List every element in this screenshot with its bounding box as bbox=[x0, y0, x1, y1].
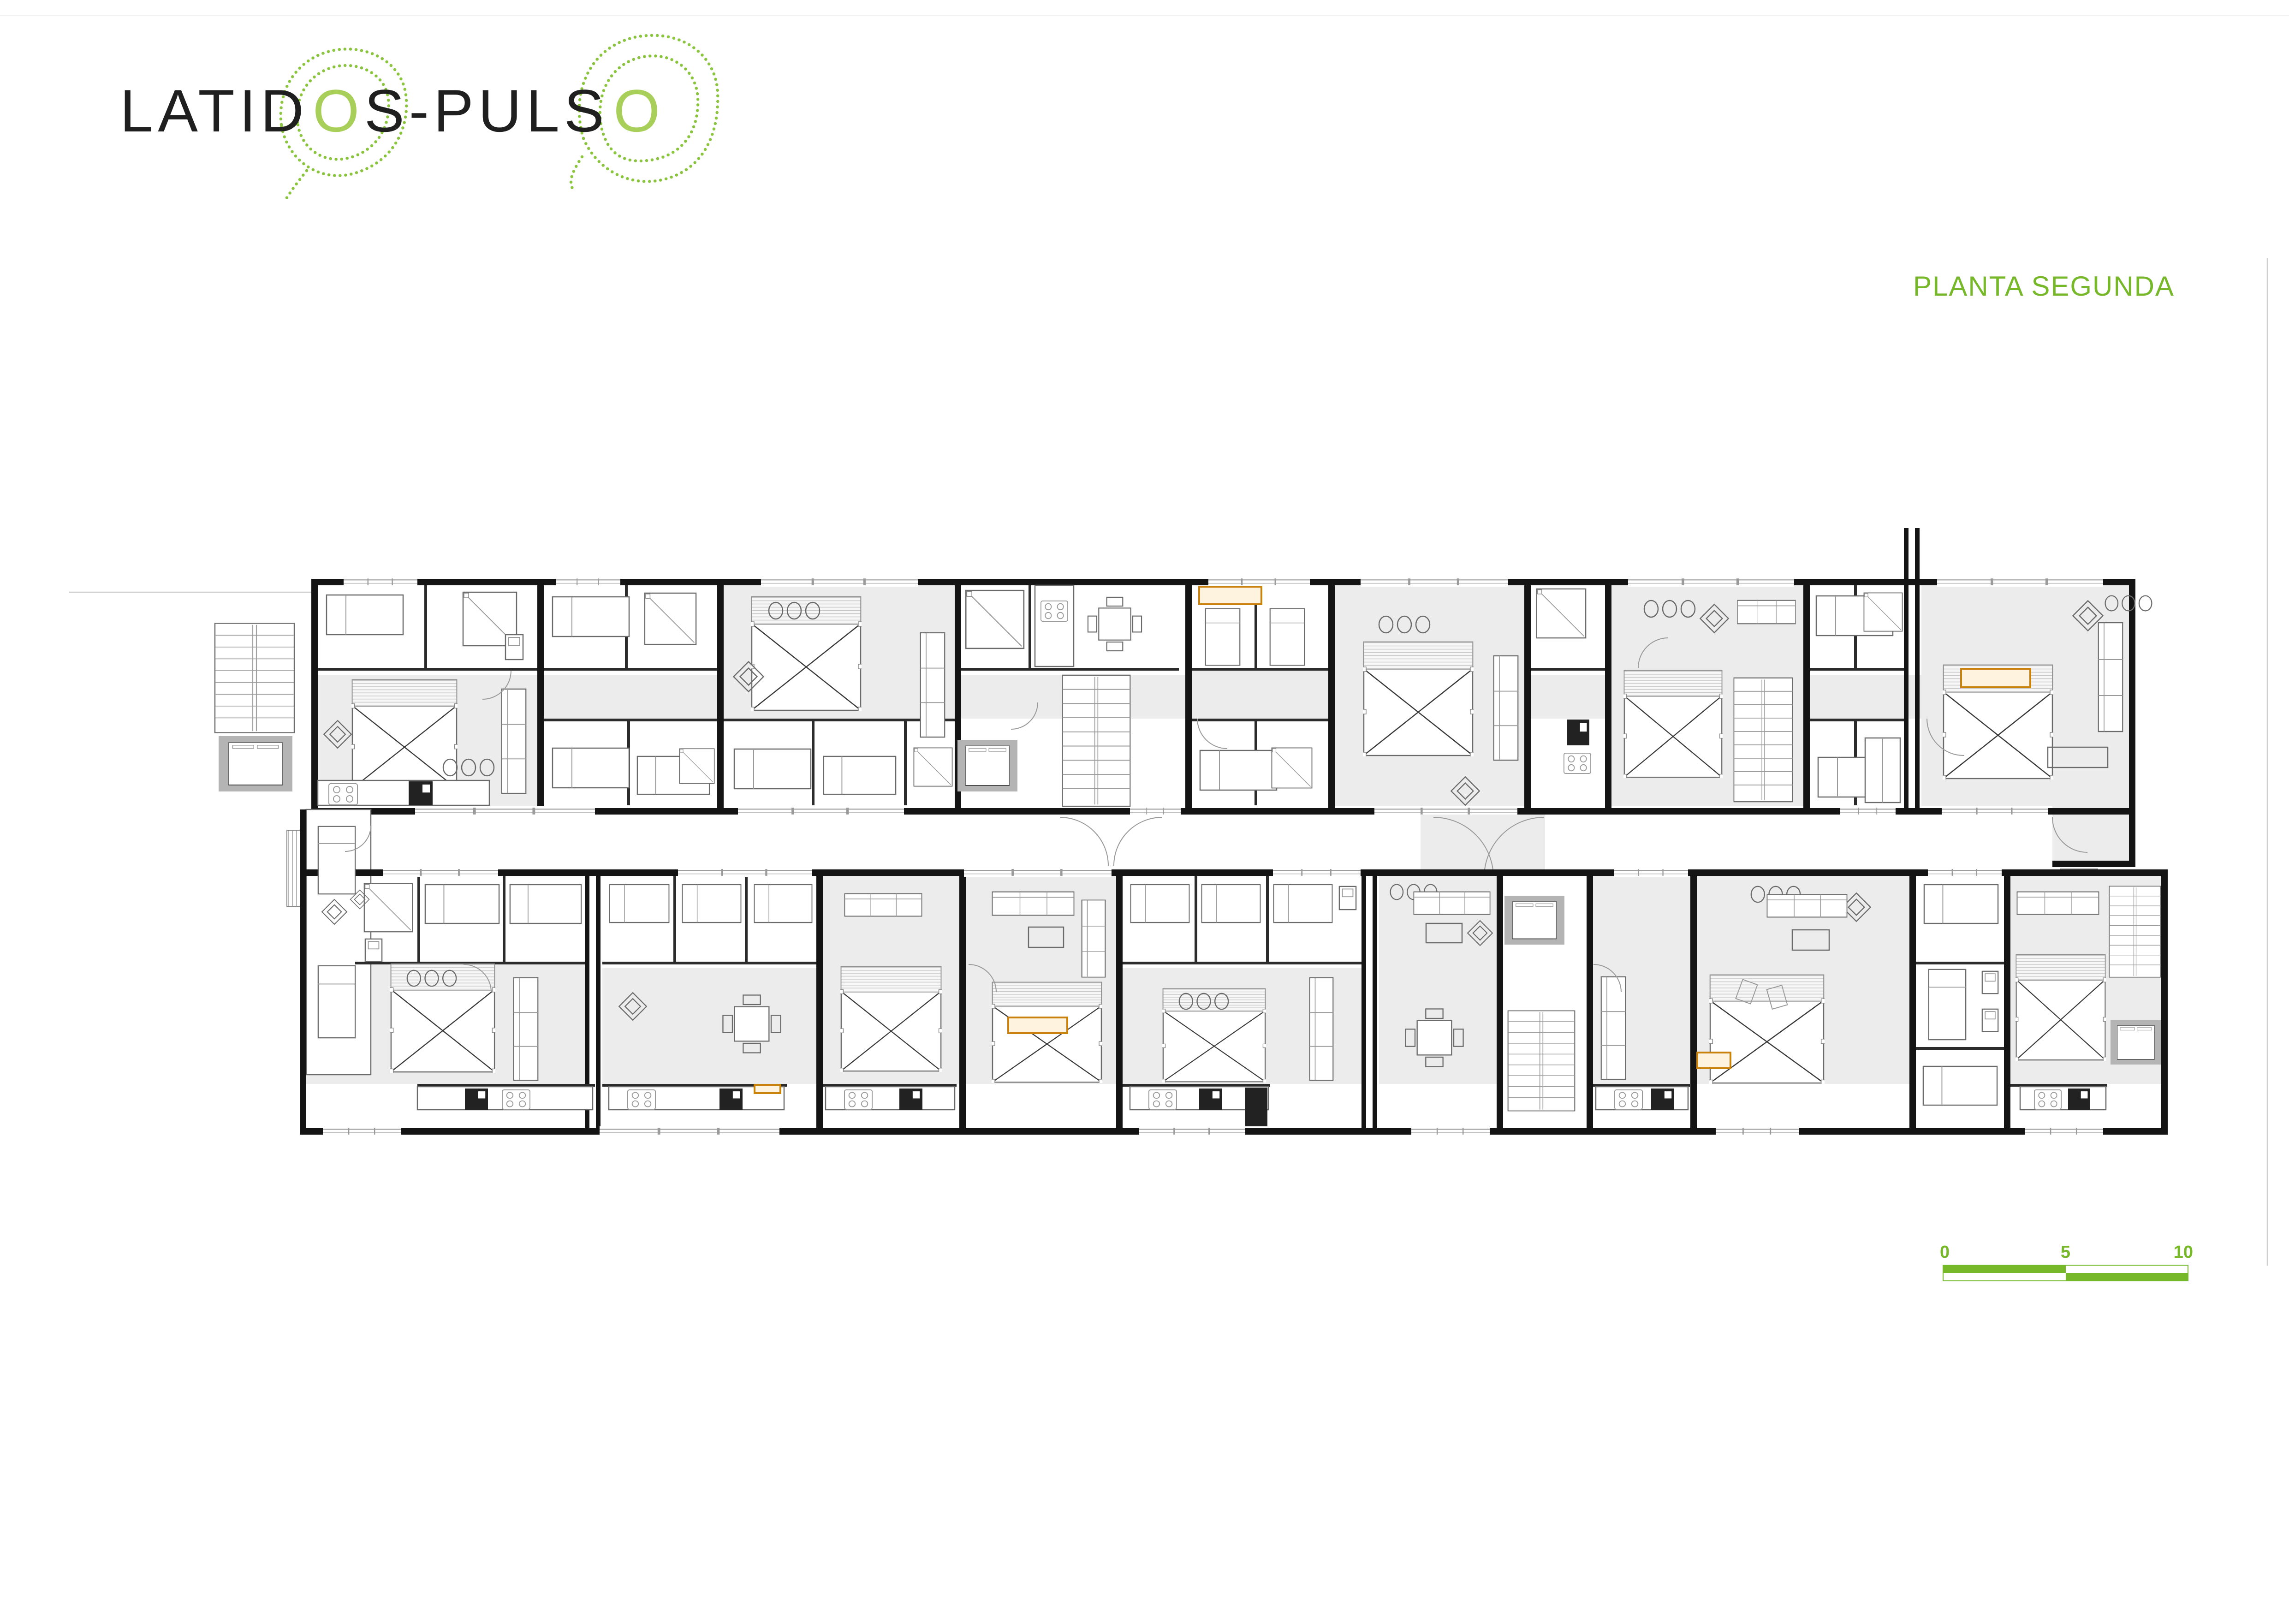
single-bed-icon bbox=[553, 597, 629, 637]
single-bed-icon bbox=[683, 885, 741, 922]
double-bed-icon bbox=[350, 680, 459, 790]
presentation-sheet: { "logo": { "part1": "LATID", "o1": "O",… bbox=[0, 0, 2289, 1624]
shower-icon bbox=[966, 590, 1024, 648]
counter-highlight bbox=[755, 1085, 780, 1093]
single-bed-icon bbox=[1923, 1066, 1997, 1105]
sink-icon bbox=[899, 1089, 922, 1110]
elevator-icon bbox=[2111, 1020, 2161, 1065]
shower-icon bbox=[1537, 589, 1586, 638]
single-bed-icon bbox=[1924, 885, 1998, 923]
sofa-icon bbox=[1767, 895, 1847, 917]
graphic-scale: 0 5 10 bbox=[1943, 1243, 2188, 1281]
sofa-icon bbox=[2099, 623, 2123, 732]
sofa-icon bbox=[502, 689, 526, 793]
upper-wing bbox=[311, 528, 2152, 867]
dining-table-icon bbox=[1088, 597, 1142, 651]
scale-segment bbox=[2066, 1273, 2188, 1280]
single-bed-icon bbox=[318, 827, 355, 894]
bed-highlight bbox=[1697, 1053, 1730, 1068]
toilet-icon bbox=[505, 635, 523, 660]
elevator-icon bbox=[957, 740, 1017, 791]
scale-segment bbox=[1944, 1273, 2066, 1280]
single-bed-icon bbox=[510, 885, 581, 923]
scale-labels: 0 5 10 bbox=[1943, 1243, 2188, 1263]
shower-icon bbox=[914, 748, 952, 786]
scale-label-0: 0 bbox=[1940, 1243, 1950, 1262]
elevator-icon bbox=[219, 736, 292, 791]
expansion-joint bbox=[1904, 528, 1908, 815]
double-bed-icon bbox=[2015, 955, 2107, 1061]
kitchen-counter bbox=[318, 780, 489, 805]
sofa-icon bbox=[2017, 892, 2099, 915]
sink-icon bbox=[1567, 720, 1589, 745]
expansion-joint bbox=[1915, 528, 1920, 815]
sofa-icon bbox=[844, 894, 922, 916]
single-bed-icon bbox=[755, 885, 812, 922]
stair-icon bbox=[1508, 1011, 1575, 1111]
headboard-highlight bbox=[1961, 669, 2030, 687]
double-bed-icon bbox=[1362, 642, 1475, 757]
hob-icon bbox=[1564, 753, 1591, 773]
kitchen-counter bbox=[1035, 585, 1074, 666]
stair-icon bbox=[1734, 678, 1792, 802]
bed-highlight bbox=[1008, 1017, 1067, 1033]
sink-icon bbox=[1651, 1089, 1674, 1110]
single-bed-icon bbox=[824, 756, 896, 794]
single-bed-icon bbox=[1929, 970, 1966, 1040]
sofa-icon bbox=[1082, 900, 1106, 977]
single-bed-icon bbox=[327, 595, 403, 635]
toilet-icon bbox=[1339, 886, 1356, 910]
shower-icon bbox=[1864, 593, 1902, 631]
sink-icon bbox=[465, 1089, 488, 1110]
sofa-icon bbox=[1414, 892, 1490, 915]
shower-icon bbox=[1272, 748, 1312, 788]
scale-bar bbox=[1943, 1265, 2188, 1281]
scale-label-10: 10 bbox=[2174, 1243, 2193, 1262]
toilet-icon bbox=[1982, 1009, 1998, 1031]
single-bed-icon bbox=[610, 885, 669, 922]
toilet-icon bbox=[365, 939, 382, 961]
scale-label-5: 5 bbox=[2061, 1243, 2070, 1262]
mid-left-core bbox=[957, 740, 1017, 791]
sofa-icon bbox=[1737, 601, 1796, 624]
sofa-icon bbox=[921, 633, 945, 737]
single-bed-icon bbox=[1270, 608, 1305, 665]
stair-icon bbox=[1063, 675, 1130, 806]
single-bed-icon bbox=[1131, 885, 1189, 922]
single-bed-icon bbox=[318, 966, 355, 1038]
sofa-icon bbox=[1310, 978, 1333, 1080]
sofa-icon bbox=[514, 978, 538, 1080]
single-bed-icon bbox=[734, 749, 811, 789]
sink-icon bbox=[719, 1089, 743, 1110]
single-bed-icon bbox=[425, 885, 499, 923]
shower-icon bbox=[645, 593, 696, 644]
shower-icon bbox=[364, 884, 412, 932]
floor-plan bbox=[0, 0, 2289, 1624]
stair-icon bbox=[2109, 886, 2160, 977]
double-bed-icon bbox=[839, 967, 943, 1072]
single-bed-icon bbox=[1274, 885, 1332, 922]
double-bed-icon bbox=[1161, 989, 1267, 1083]
sink-icon bbox=[1199, 1089, 1222, 1110]
stair-icon bbox=[215, 624, 294, 733]
single-bed-icon bbox=[1206, 608, 1240, 665]
sofa-icon bbox=[1494, 656, 1518, 760]
sink-icon bbox=[2068, 1089, 2090, 1110]
scale-segment bbox=[2066, 1266, 2188, 1273]
sofa-icon bbox=[1601, 977, 1626, 1079]
single-bed-icon bbox=[1202, 885, 1260, 922]
single-bed-icon bbox=[553, 748, 629, 788]
toilet-icon bbox=[1982, 971, 1998, 993]
scale-segment bbox=[1944, 1266, 2066, 1273]
double-bed-icon bbox=[1622, 671, 1724, 779]
kitchen-counter bbox=[2020, 1087, 2106, 1110]
fridge bbox=[1245, 1088, 1267, 1126]
desk-highlight bbox=[1199, 587, 1261, 604]
single-bed-icon bbox=[1200, 750, 1277, 790]
elevator-icon bbox=[1504, 896, 1564, 945]
left-stair-core bbox=[215, 624, 294, 791]
lower-wing bbox=[300, 809, 2168, 1136]
sink-icon bbox=[409, 781, 433, 805]
shower-icon bbox=[679, 749, 714, 783]
sofa-icon bbox=[993, 892, 1074, 916]
